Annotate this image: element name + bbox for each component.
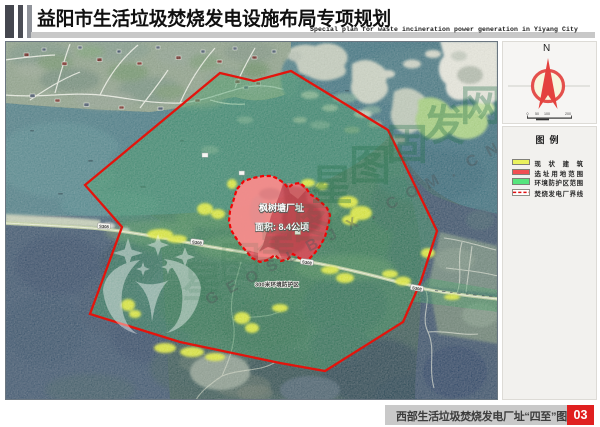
svg-text:固: 固: [386, 121, 428, 168]
svg-text:星: 星: [311, 162, 353, 209]
svg-text:300米环境防护区: 300米环境防护区: [255, 281, 299, 289]
svg-text:发: 发: [423, 102, 465, 149]
svg-text:网: 网: [460, 82, 498, 129]
svg-text:50: 50: [535, 112, 539, 116]
svg-text:0: 0: [527, 112, 529, 116]
svg-text:S308: S308: [99, 224, 110, 230]
svg-text:200: 200: [565, 112, 571, 116]
svg-text:100: 100: [544, 112, 550, 116]
svg-text:图: 图: [349, 142, 391, 189]
